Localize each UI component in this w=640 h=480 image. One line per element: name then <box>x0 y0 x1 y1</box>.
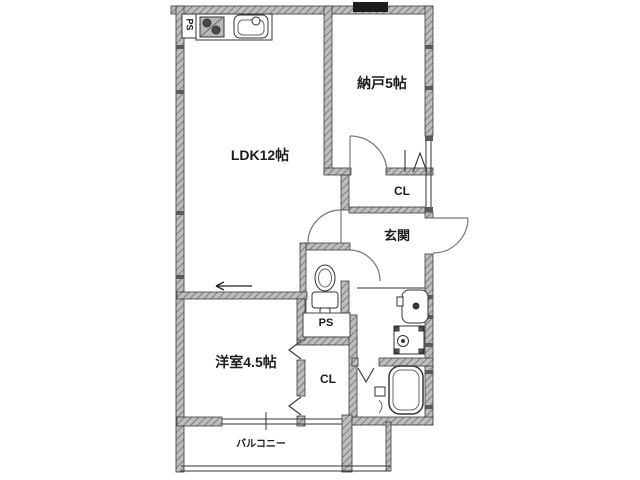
room-label-western-room: 洋室4.5帖 <box>196 355 296 369</box>
room-label-entrance: 玄関 <box>374 229 420 242</box>
toilet-icon <box>312 265 338 314</box>
room-label-closet-lower: CL <box>315 373 341 385</box>
room-label-balcony: バルコニー <box>223 440 299 450</box>
washbasin-icon <box>397 290 428 323</box>
stove-icon <box>200 17 224 37</box>
room-label-pipe-space: PS <box>313 318 339 329</box>
room-label-closet-upper: CL <box>389 185 415 197</box>
window-dark-panel <box>353 2 388 12</box>
room-label-ldk: LDK12帖 <box>215 148 305 162</box>
floorplan-canvas: LDK12帖 納戸5帖 CL 玄関 PS 洋室4.5帖 CL バルコニー PS <box>0 0 640 480</box>
room-label-kitchen-pipe-space: PS <box>185 13 194 37</box>
room-label-storage: 納戸5帖 <box>342 76 422 90</box>
bathtub-icon <box>375 366 423 414</box>
sliding-door-arrow <box>216 282 252 290</box>
kitchen-sink-icon <box>234 15 268 38</box>
washing-machine-icon <box>394 326 424 354</box>
floorplan-drawing <box>0 0 640 480</box>
